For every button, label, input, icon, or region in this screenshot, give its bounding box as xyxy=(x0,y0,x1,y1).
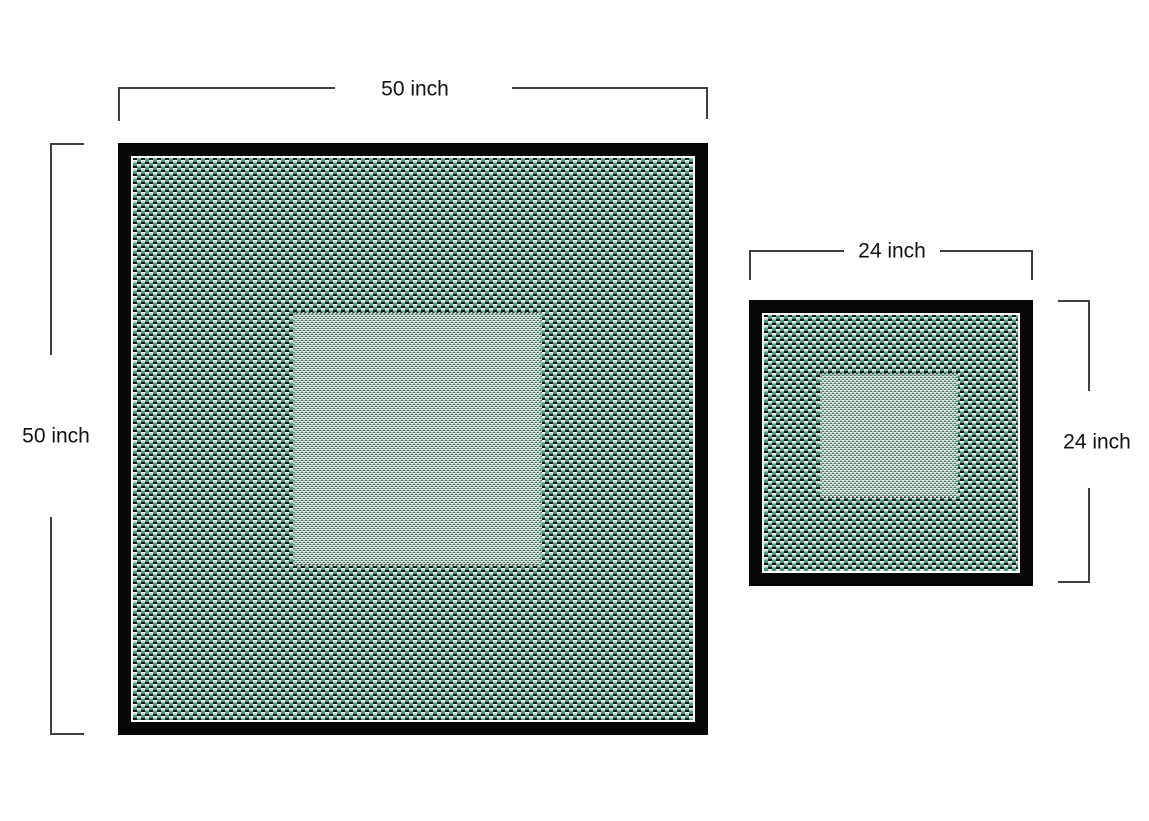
dimension-end-tick xyxy=(1058,581,1090,583)
large-height-label: 50 inch xyxy=(19,425,93,448)
small-mat-center-fine-weave xyxy=(820,373,958,498)
dimension-line-segment xyxy=(512,87,708,89)
diagram-canvas: 50 inch 50 inch 24 inch 24 inch xyxy=(0,0,1149,821)
dimension-line-segment xyxy=(749,250,844,252)
large-width-label: 50 inch xyxy=(378,78,452,101)
small-height-label: 24 inch xyxy=(1060,431,1134,454)
dimension-line-segment xyxy=(50,143,52,355)
dimension-line-segment xyxy=(940,250,1033,252)
small-mat xyxy=(749,300,1033,586)
dimension-line-segment xyxy=(50,517,52,735)
large-mat xyxy=(118,143,708,735)
dimension-line-segment xyxy=(118,87,335,89)
dimension-end-tick xyxy=(706,87,708,119)
dimension-end-tick xyxy=(50,143,84,145)
large-mat-center-fine-weave xyxy=(293,312,542,566)
dimension-end-tick xyxy=(1058,300,1090,302)
dimension-line-segment xyxy=(1088,301,1090,391)
dimension-line-segment xyxy=(1088,488,1090,583)
small-width-label: 24 inch xyxy=(855,240,929,263)
dimension-end-tick xyxy=(118,87,120,121)
dimension-end-tick xyxy=(1031,250,1033,280)
dimension-end-tick xyxy=(50,733,84,735)
dimension-end-tick xyxy=(749,250,751,280)
